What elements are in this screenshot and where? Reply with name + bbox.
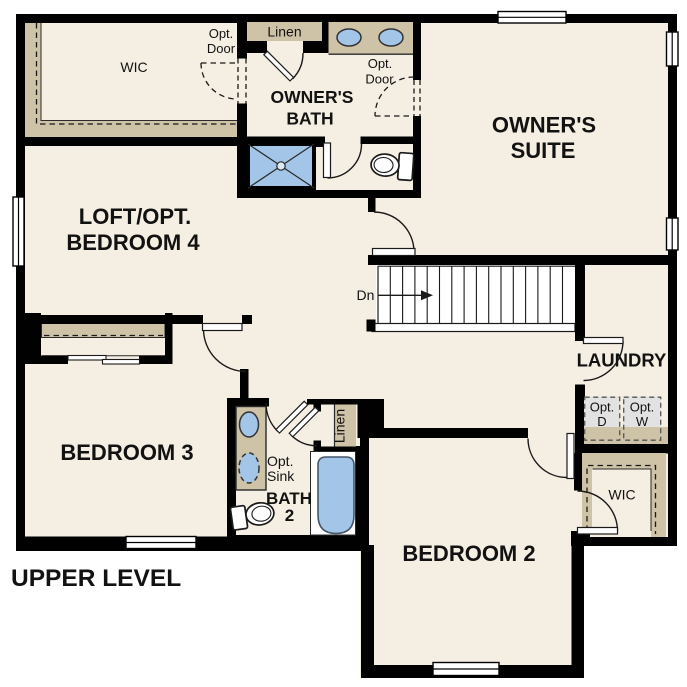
svg-text:Linen: Linen — [332, 409, 348, 443]
svg-text:D: D — [597, 414, 606, 429]
svg-text:Dn: Dn — [357, 287, 375, 303]
svg-text:Opt.: Opt. — [630, 400, 655, 415]
svg-text:Door: Door — [207, 41, 236, 56]
svg-text:WIC: WIC — [120, 59, 147, 75]
svg-text:BEDROOM 4: BEDROOM 4 — [66, 230, 200, 255]
svg-text:LOFT/OPT.: LOFT/OPT. — [79, 204, 191, 229]
svg-text:UPPER LEVEL: UPPER LEVEL — [11, 565, 181, 592]
svg-text:Opt.: Opt. — [267, 453, 293, 469]
svg-text:Opt.: Opt. — [590, 400, 615, 415]
svg-text:WIC: WIC — [608, 487, 635, 503]
svg-text:BATH: BATH — [286, 109, 333, 129]
svg-text:Opt.: Opt. — [368, 56, 393, 71]
svg-text:2: 2 — [285, 506, 294, 525]
svg-text:BEDROOM 2: BEDROOM 2 — [402, 541, 535, 566]
svg-text:BEDROOM 3: BEDROOM 3 — [60, 440, 193, 465]
svg-text:OWNER'S: OWNER'S — [492, 113, 596, 138]
svg-text:W: W — [636, 414, 649, 429]
svg-text:Opt.: Opt. — [209, 26, 234, 41]
svg-text:Sink: Sink — [267, 468, 295, 484]
svg-text:Door: Door — [365, 72, 394, 87]
svg-text:LAUNDRY: LAUNDRY — [577, 350, 667, 371]
svg-text:OWNER'S: OWNER'S — [271, 87, 354, 107]
svg-text:Linen: Linen — [267, 24, 301, 40]
svg-text:SUITE: SUITE — [511, 138, 576, 163]
